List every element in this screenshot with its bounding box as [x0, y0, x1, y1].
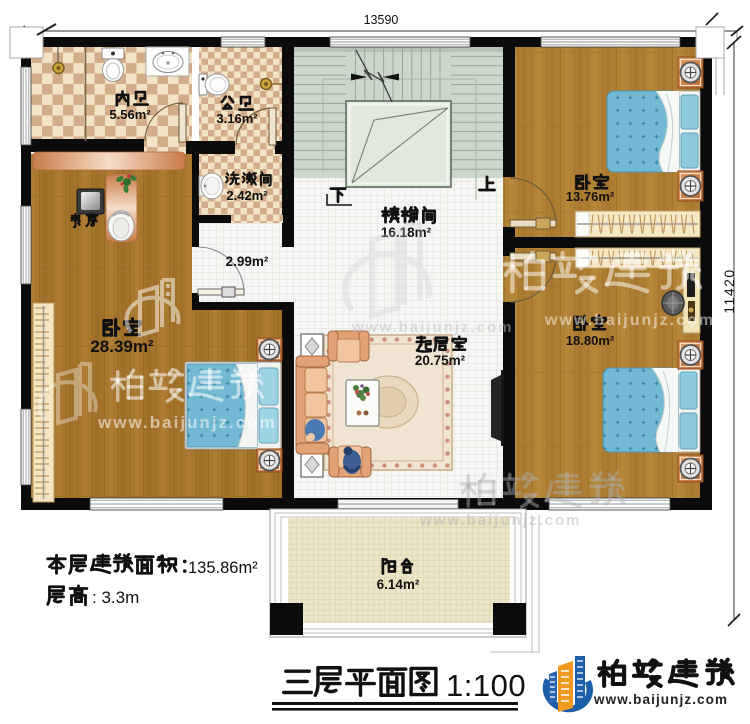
svg-text:1:100: 1:100 [446, 668, 526, 703]
svg-text:www.baijunjz.com: www.baijunjz.com [419, 512, 581, 529]
svg-text:2.42m²: 2.42m² [226, 188, 268, 203]
svg-text:www.baijunjz.com: www.baijunjz.com [593, 692, 728, 707]
svg-text:11420: 11420 [721, 268, 737, 313]
svg-text:2.99m²: 2.99m² [226, 254, 269, 269]
svg-text:6.14m²: 6.14m² [377, 577, 420, 592]
svg-text:3.16m²: 3.16m² [216, 111, 258, 126]
svg-text:www.baijunjz.com: www.baijunjz.com [544, 312, 715, 329]
svg-text:www.baijunjz.com: www.baijunjz.com [97, 413, 277, 432]
svg-text:13590: 13590 [364, 13, 399, 27]
svg-text:20.75m²: 20.75m² [415, 353, 466, 368]
svg-text:: 3.3m: : 3.3m [92, 588, 139, 607]
svg-text:5.56m²: 5.56m² [109, 107, 151, 122]
svg-text:18.80m²: 18.80m² [566, 333, 615, 348]
svg-text:13.76m²: 13.76m² [566, 189, 615, 204]
svg-text:135.86m²: 135.86m² [188, 559, 258, 577]
svg-text:28.39m²: 28.39m² [90, 337, 154, 356]
svg-text:www.baijunjz.com: www.baijunjz.com [351, 319, 513, 336]
